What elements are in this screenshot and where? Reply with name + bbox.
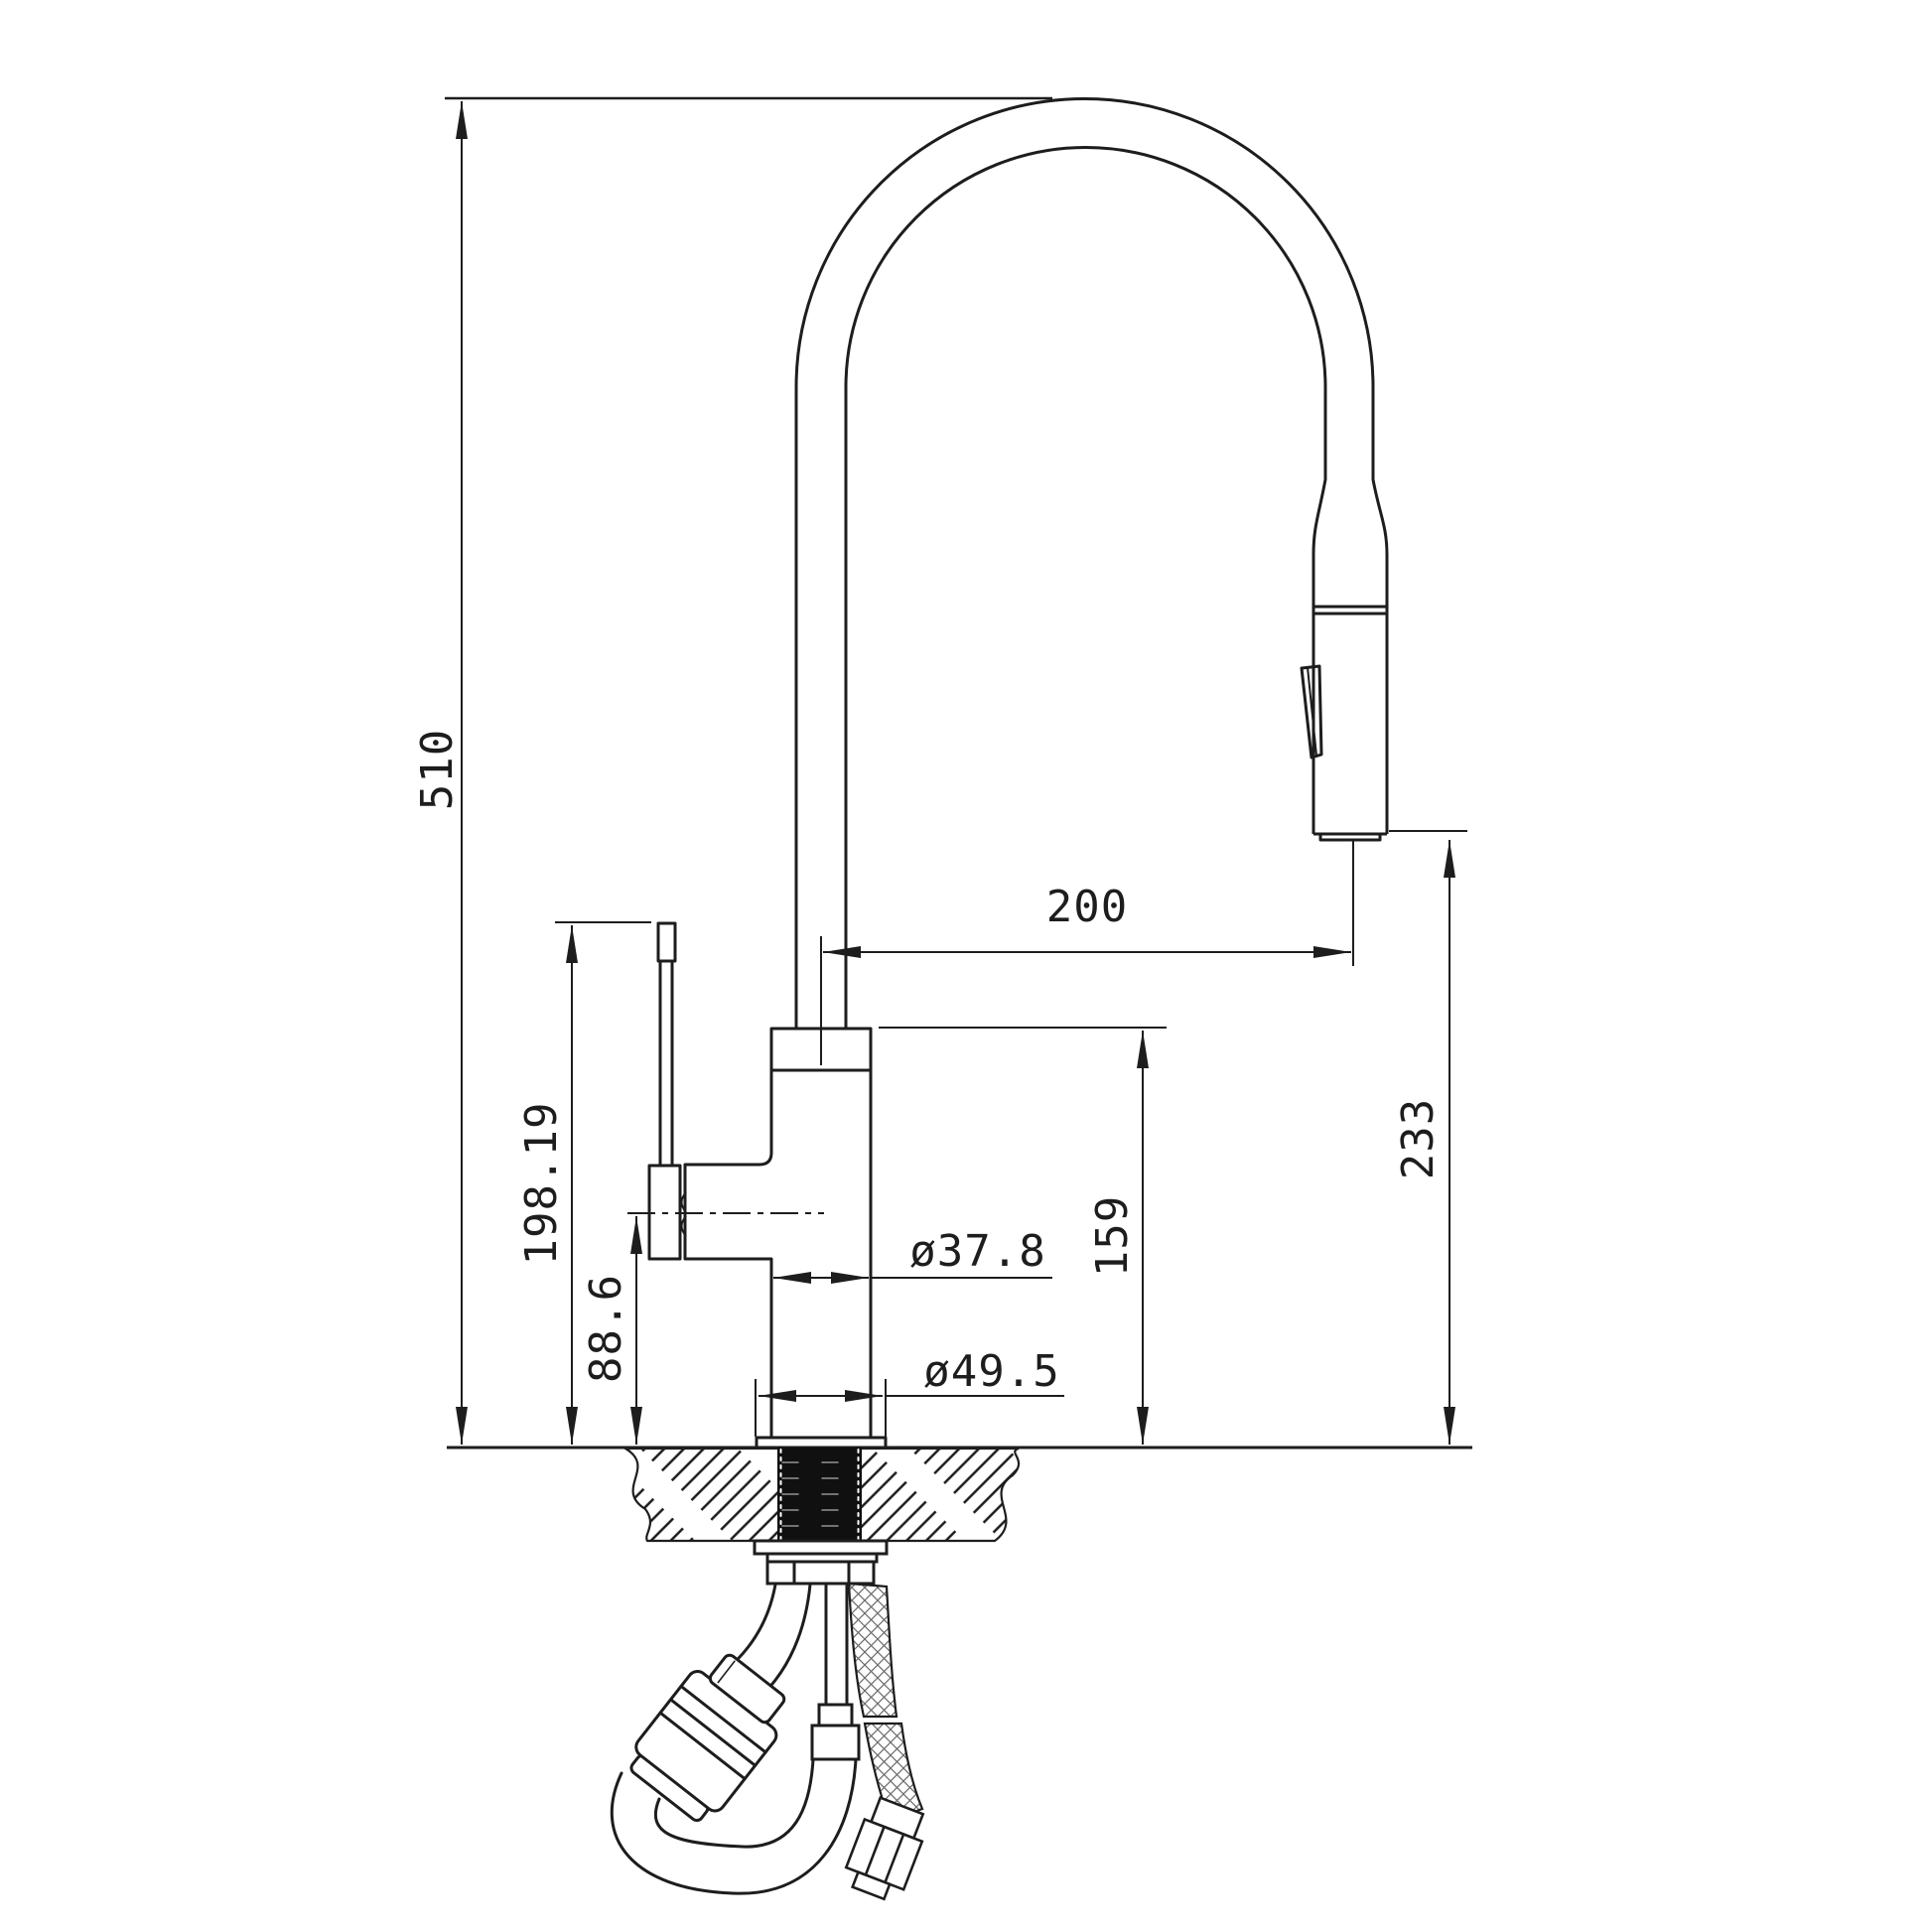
countertop-section [447, 1448, 1472, 1541]
dim-overall-height: 510 [412, 101, 463, 1445]
dim-spray-head-height-label: 233 [1393, 1098, 1444, 1179]
center-tube-connector [812, 1725, 859, 1759]
dim-spray-head-height: 233 [1393, 840, 1449, 1445]
dim-handle-center-height: 88.6 [581, 1216, 636, 1445]
drawing-sheet: 510 198.19 88.6 159 233 200 ø37.8 [0, 0, 1932, 1932]
shank-washer [755, 1541, 887, 1554]
dim-base-diameter-label: ø49.5 [923, 1346, 1059, 1397]
dim-handle-top-height-label: 198.19 [516, 1102, 567, 1266]
dim-body-top-height: 159 [1087, 1031, 1143, 1445]
faucet-technical-drawing: 510 198.19 88.6 159 233 200 ø37.8 [0, 0, 1932, 1932]
braided-hose-upper [849, 1584, 897, 1717]
hose-weight [621, 1642, 800, 1829]
supply-hose-fitting [841, 1795, 932, 1904]
dim-spout-reach-label: 200 [1046, 882, 1128, 932]
dim-body-diameter-label: ø37.8 [909, 1226, 1045, 1277]
threaded-shank [777, 1448, 862, 1541]
dim-spout-reach: 200 [823, 882, 1351, 952]
dim-base-diameter: ø49.5 [759, 1346, 1064, 1397]
dim-body-diameter: ø37.8 [773, 1226, 1052, 1278]
center-tube-collar [819, 1705, 852, 1725]
dimension-annotations: 510 198.19 88.6 159 233 200 ø37.8 [412, 101, 1449, 1445]
handle-cap [658, 923, 675, 961]
dim-handle-top-height: 198.19 [516, 925, 572, 1445]
body-left-edge [685, 1070, 771, 1438]
dim-body-top-height-label: 159 [1087, 1195, 1138, 1277]
dim-overall-height-label: 510 [412, 729, 463, 810]
lock-nut [767, 1562, 874, 1584]
dim-handle-center-height-label: 88.6 [581, 1274, 631, 1383]
